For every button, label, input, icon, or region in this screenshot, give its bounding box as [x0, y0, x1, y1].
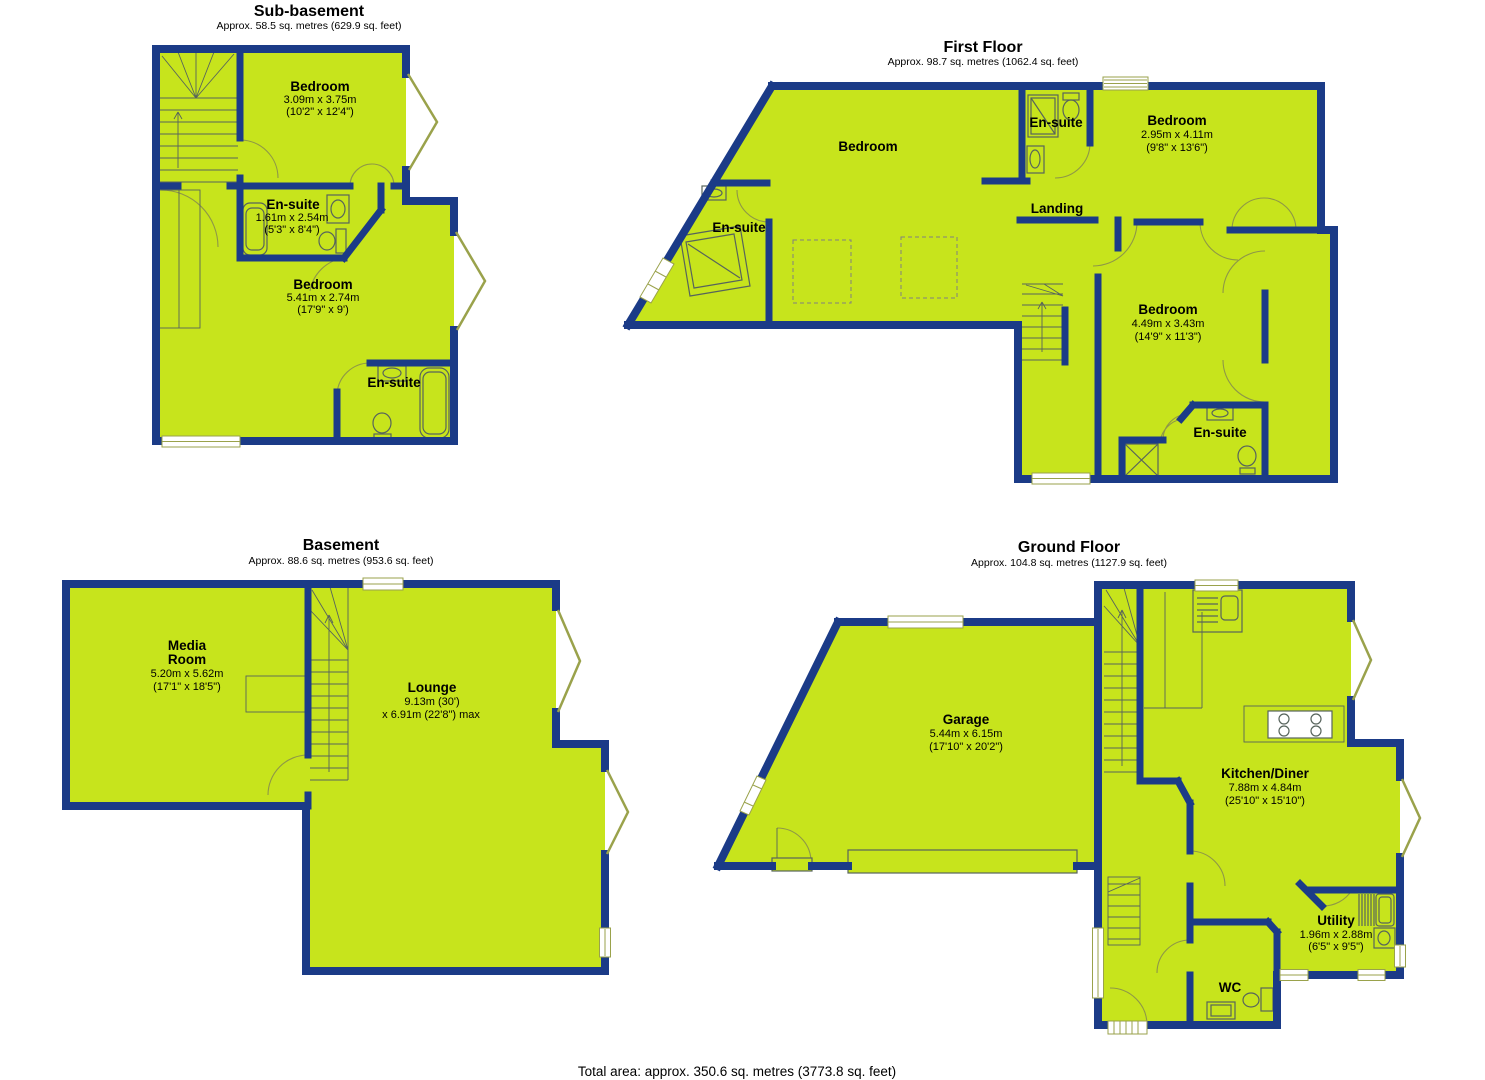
total-area-label: Total area: approx. 350.6 sq. metres (37… — [578, 1064, 896, 1079]
room-label: Utility — [1317, 913, 1355, 928]
floor-area-label: Approx. 98.7 sq. metres (1062.4 sq. feet… — [888, 56, 1079, 68]
room-dim: (10'2" x 12'4") — [286, 106, 354, 118]
room-label: Bedroom — [1147, 113, 1206, 128]
bay-window-icon — [1353, 620, 1371, 700]
room-dim: (6'5" x 9'5") — [1308, 941, 1363, 953]
room-dim: 5.20m x 5.62m — [151, 668, 224, 680]
room-label: Garage — [943, 712, 990, 727]
room-label: En-suite — [1193, 425, 1247, 440]
bay-window-icon — [1402, 779, 1420, 857]
room-dim: 1.96m x 2.88m — [1300, 929, 1373, 941]
floorplan-drawing: Sub-basement Approx. 58.5 sq. metres (62… — [0, 0, 1485, 1080]
room-dim: (17'1" x 18'5") — [153, 681, 221, 693]
bay-window-icon — [558, 610, 580, 712]
room-label: Media — [168, 638, 207, 653]
bay-window-icon — [456, 232, 485, 330]
floor-title: Sub-basement — [254, 3, 365, 20]
bay-window-icon — [607, 770, 628, 854]
room-label: Bedroom — [1138, 302, 1197, 317]
room-dim: 9.13m (30') — [404, 696, 459, 708]
hob-icon — [1268, 711, 1332, 738]
room-label: Room — [168, 652, 206, 667]
room-label: En-suite — [712, 220, 766, 235]
room-label: Bedroom — [838, 139, 897, 154]
room-label: Bedroom — [293, 277, 352, 292]
room-label: Lounge — [408, 680, 457, 695]
room-label: Kitchen/Diner — [1221, 766, 1310, 781]
floor-plan-sub-basement: Sub-basement Approx. 58.5 sq. metres (62… — [156, 3, 485, 447]
room-dim: 1.61m x 2.54m — [256, 212, 329, 224]
floor-plan-basement: Basement Approx. 88.6 sq. metres (953.6 … — [66, 537, 628, 971]
room-dim: 4.49m x 3.43m — [1132, 318, 1205, 330]
room-label: En-suite — [1029, 115, 1083, 130]
floor-footprint — [66, 584, 605, 971]
floor-plan-ground-floor: Ground Floor Approx. 104.8 sq. metres (1… — [718, 539, 1420, 1034]
floor-plan-first-floor: First Floor Approx. 98.7 sq. metres (106… — [628, 39, 1334, 484]
room-dim: (17'10" x 20'2") — [929, 741, 1003, 753]
room-label: En-suite — [266, 197, 320, 212]
room-dim: (14'9" x 11'3") — [1135, 331, 1202, 343]
room-dim: (17'9" x 9') — [297, 304, 349, 316]
room-dim: 5.41m x 2.74m — [287, 292, 360, 304]
floor-area-label: Approx. 88.6 sq. metres (953.6 sq. feet) — [248, 555, 433, 567]
side-door-threshold — [772, 858, 812, 871]
floor-title: Basement — [303, 537, 380, 554]
room-dim: (9'8" x 13'6") — [1146, 142, 1208, 154]
room-dim: (5'3" x 8'4") — [264, 224, 319, 236]
room-dim: 2.95m x 4.11m — [1141, 129, 1213, 141]
room-label: Landing — [1031, 201, 1084, 216]
room-label: WC — [1219, 980, 1242, 995]
floor-area-label: Approx. 104.8 sq. metres (1127.9 sq. fee… — [971, 557, 1167, 569]
floor-title: First Floor — [943, 39, 1022, 56]
room-dim: 5.44m x 6.15m — [930, 728, 1003, 740]
room-dim: x 6.91m (22'8") max — [382, 709, 480, 721]
floorplan-page: Sub-basement Approx. 58.5 sq. metres (62… — [0, 0, 1485, 1080]
room-dim: 3.09m x 3.75m — [284, 94, 357, 106]
floor-area-label: Approx. 58.5 sq. metres (629.9 sq. feet) — [216, 20, 401, 32]
room-label: En-suite — [367, 375, 421, 390]
floor-title: Ground Floor — [1018, 539, 1120, 556]
room-dim: 7.88m x 4.84m — [1229, 782, 1302, 794]
room-label: Bedroom — [290, 79, 349, 94]
room-dim: (25'10" x 15'10") — [1225, 795, 1305, 807]
bay-window-icon — [408, 74, 437, 170]
